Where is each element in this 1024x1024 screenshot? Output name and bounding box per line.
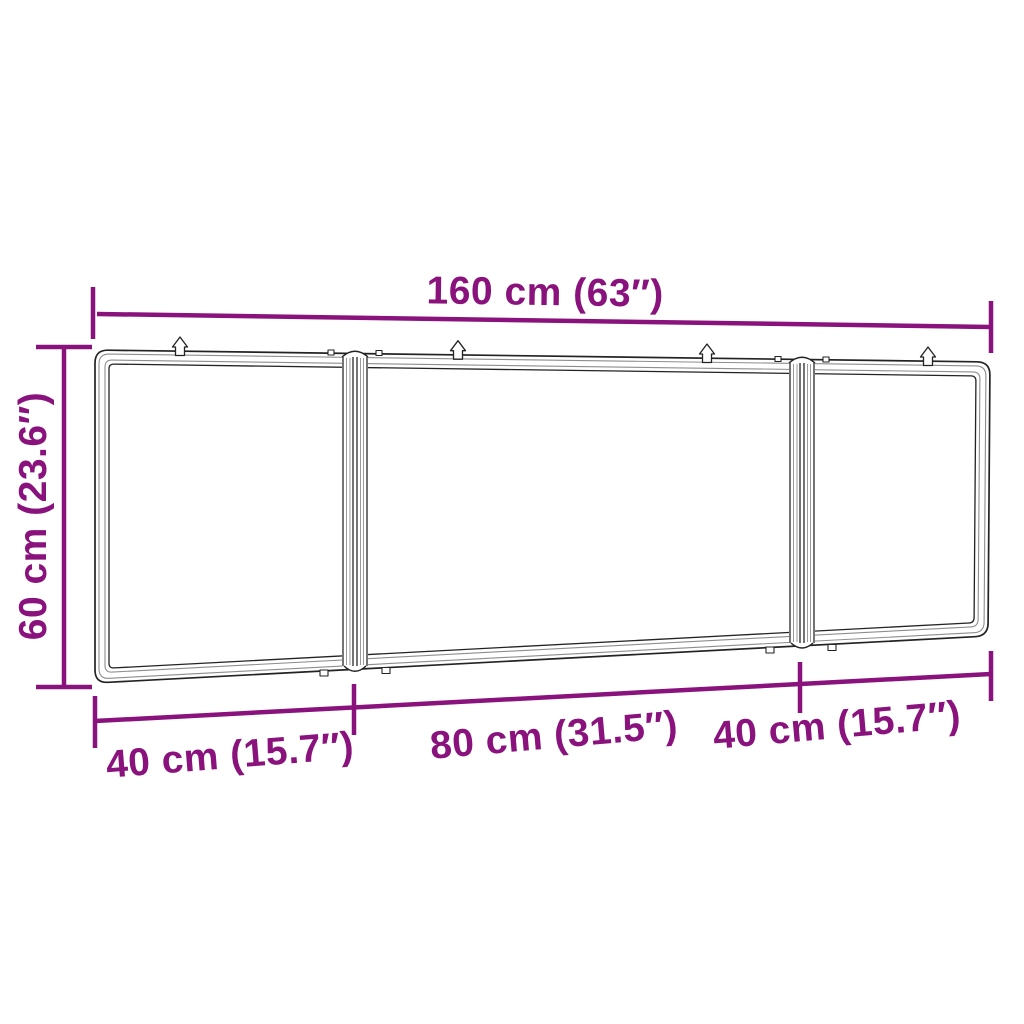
- dimension-height-label: 60 cm (23.6″): [12, 392, 55, 640]
- dimension-segment-40-right-label: 40 cm (15.7″): [711, 693, 962, 757]
- whiteboard-line-art: [95, 337, 990, 682]
- mounting-hook-2: [451, 341, 466, 360]
- whiteboard-dimension-diagram: 160 cm (63″) 60 cm (23.6″) 40 cm (15.7″)…: [0, 0, 1024, 1024]
- mounting-hook-3: [700, 344, 715, 363]
- dimension-segment-40-left-label: 40 cm (15.7″): [104, 724, 355, 786]
- panel-divider-right: [766, 357, 836, 654]
- dimension-segment-80-label: 80 cm (31.5″): [428, 703, 679, 767]
- board-frame-line-3: [109, 364, 976, 668]
- dim-top-main-line: [97, 314, 991, 327]
- panel-divider-left: [320, 350, 390, 676]
- mounting-hook-4: [921, 347, 936, 366]
- dimension-width-total-label: 160 cm (63″): [426, 269, 664, 315]
- board-frame-line-2: [105, 360, 980, 672]
- mounting-hook-1: [173, 337, 188, 356]
- diagram-svg: 160 cm (63″) 60 cm (23.6″) 40 cm (15.7″)…: [0, 0, 1024, 1024]
